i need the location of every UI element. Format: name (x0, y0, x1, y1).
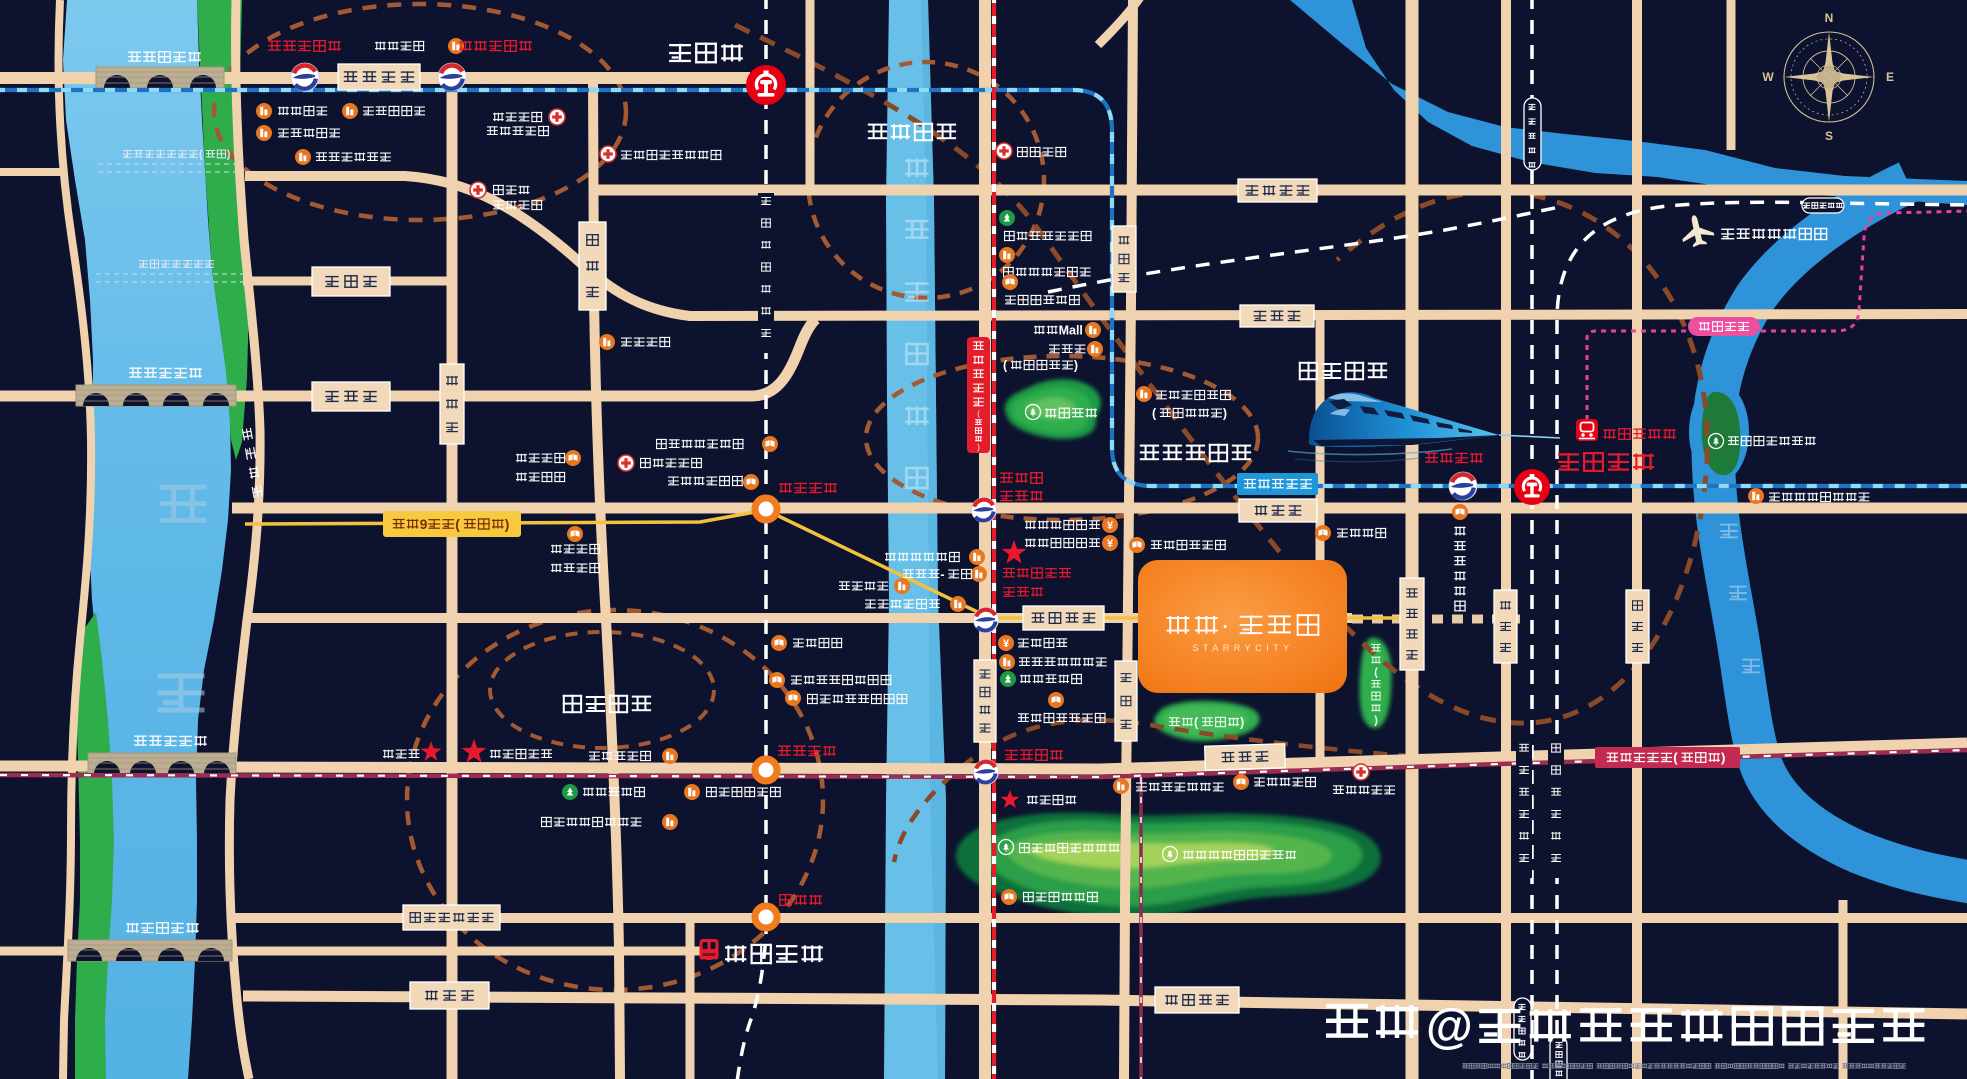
svg-text:N: N (1825, 11, 1834, 25)
svg-text:@: @ (1426, 1001, 1474, 1054)
svg-text:): ) (1223, 406, 1227, 420)
svg-text:·: · (1221, 610, 1231, 640)
svg-text:(: ( (199, 149, 203, 161)
svg-text:S: S (1825, 129, 1833, 143)
svg-text:): ) (1721, 750, 1725, 765)
svg-text:(: ( (455, 517, 460, 532)
svg-text:): ) (1240, 715, 1244, 729)
svg-text:¥: ¥ (1107, 538, 1114, 550)
svg-text:E: E (1886, 70, 1894, 84)
svg-text:(: ( (977, 410, 980, 419)
svg-text:): ) (1374, 715, 1378, 727)
svg-text:STARRYCITY: STARRYCITY (1192, 643, 1293, 653)
svg-text:(: ( (1374, 667, 1378, 679)
svg-text:Mall: Mall (1059, 323, 1083, 337)
svg-text:W: W (1762, 70, 1774, 84)
svg-text:-: - (940, 567, 944, 581)
svg-text:): ) (505, 517, 510, 532)
svg-text:): ) (1074, 358, 1078, 372)
svg-text:¥: ¥ (1003, 638, 1010, 650)
svg-text:¥: ¥ (1107, 520, 1114, 532)
svg-text:9: 9 (420, 517, 428, 532)
svg-text:): ) (227, 149, 231, 161)
svg-text:(: ( (1673, 750, 1678, 765)
svg-text:): ) (977, 443, 980, 452)
